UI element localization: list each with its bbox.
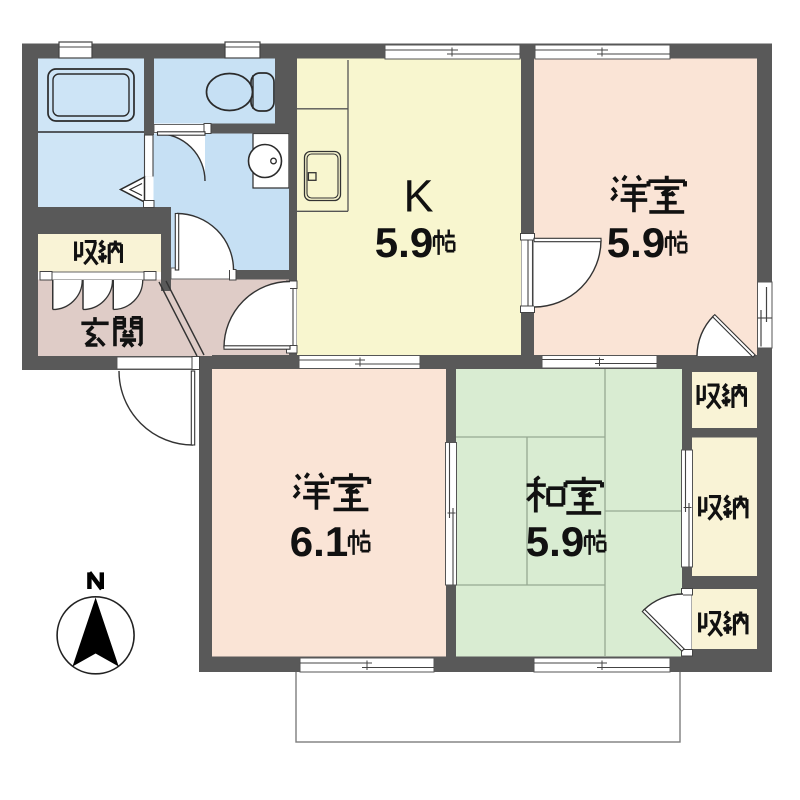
svg-text:5.9: 5.9 <box>607 219 665 266</box>
svg-text:5.9: 5.9 <box>526 518 584 565</box>
svg-text:6.1: 6.1 <box>290 518 348 565</box>
svg-text:K: K <box>403 171 433 222</box>
svg-text:5.9: 5.9 <box>375 219 433 266</box>
